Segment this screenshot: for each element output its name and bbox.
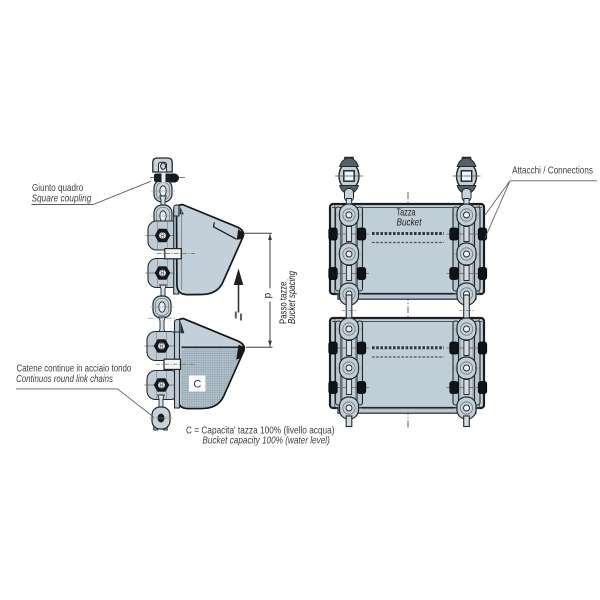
svg-text:Continuos round link chains: Continuos round link chains bbox=[16, 374, 113, 385]
svg-text:Bucket: Bucket bbox=[397, 218, 423, 229]
svg-text:Square coupling: Square coupling bbox=[32, 193, 92, 204]
svg-text:C: C bbox=[193, 379, 201, 391]
svg-text:p: p bbox=[262, 292, 273, 298]
svg-text:Catene continue in acciaio ton: Catene continue in acciaio tondo bbox=[17, 363, 132, 374]
svg-text:Bucket capacity 100% (water le: Bucket capacity 100% (water level) bbox=[202, 436, 329, 447]
svg-text:Bucket spacing: Bucket spacing bbox=[287, 271, 298, 324]
svg-text:Attacchi / Connections: Attacchi / Connections bbox=[512, 165, 593, 176]
